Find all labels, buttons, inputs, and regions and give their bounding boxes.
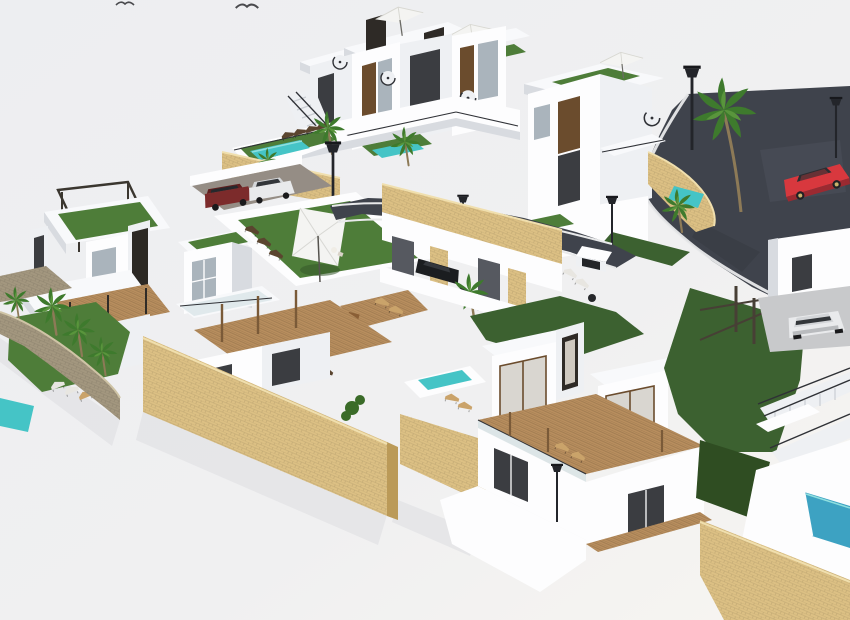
villa-right-fragment: [758, 228, 850, 352]
spiral-staircase: [333, 55, 347, 69]
patio-table: [331, 247, 337, 253]
render-canvas: [0, 0, 850, 620]
window: [478, 40, 498, 100]
pouf: [588, 294, 596, 302]
window: [558, 150, 580, 206]
spiral-staircase: [381, 71, 395, 85]
bottom-right-garden: [696, 440, 850, 620]
window-panel: [558, 96, 580, 154]
window: [272, 348, 300, 386]
window: [565, 339, 575, 385]
window: [792, 254, 812, 292]
window: [534, 104, 550, 140]
spiral-staircase: [644, 110, 659, 125]
villa-development-render: [0, 0, 850, 620]
